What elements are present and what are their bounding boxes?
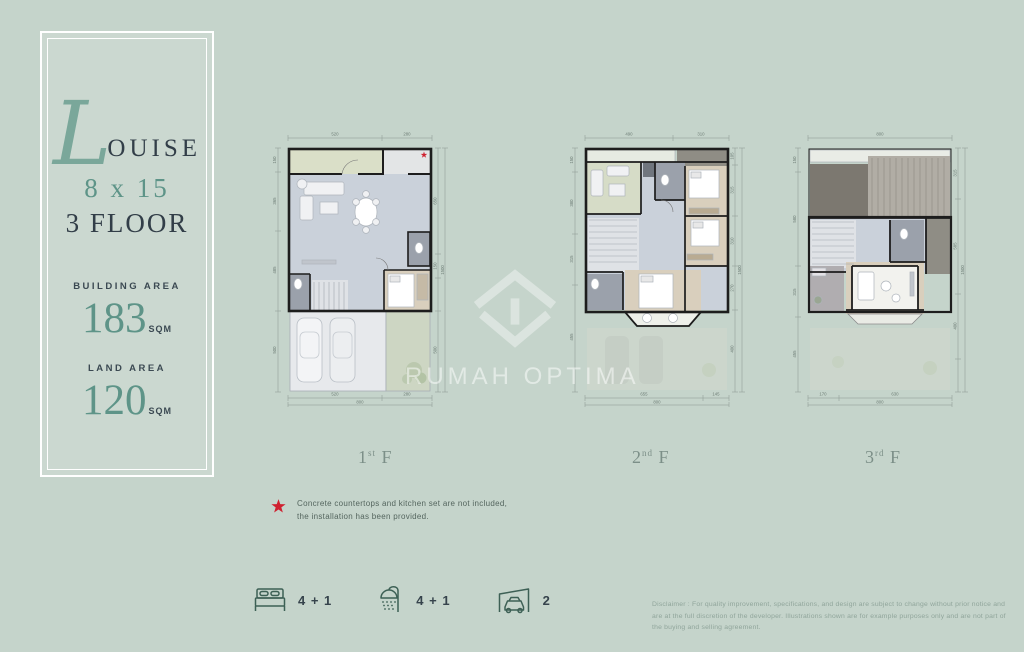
building-area-value: 183SQM [48, 294, 206, 343]
footnote-line-1: Concrete countertops and kitchen set are… [297, 498, 507, 511]
svg-text:310: 310 [697, 132, 705, 137]
svg-text:150: 150 [569, 156, 574, 164]
svg-text:650: 650 [433, 197, 438, 205]
floor-plan-3-drawing: 800 170 630 800 150 580 315 455 315 585 … [784, 122, 968, 407]
svg-text:270: 270 [730, 284, 735, 292]
footnote-text: Concrete countertops and kitchen set are… [297, 498, 507, 524]
land-area-number: 120 [82, 377, 147, 424]
svg-text:655: 655 [640, 392, 648, 397]
floor-2-label: 2nd F [632, 447, 670, 468]
title-initial: L [53, 100, 111, 169]
land-area-value: 120SQM [48, 376, 206, 425]
floor-1-label: 1st F [358, 447, 393, 468]
svg-text:145: 145 [712, 392, 720, 397]
carport-count-value: 2 [543, 593, 551, 608]
floor-plan-1-drawing: 520 280 520 280 800 150 365 485 500 650 … [264, 122, 448, 407]
svg-text:170: 170 [819, 392, 827, 397]
svg-text:315: 315 [730, 186, 735, 194]
svg-text:800: 800 [356, 400, 364, 405]
svg-text:800: 800 [653, 400, 661, 405]
floor-plan-2: 490 310 655 145 800 150 380 315 455 105 … [561, 122, 745, 407]
svg-text:1500: 1500 [737, 265, 742, 275]
svg-text:315: 315 [953, 169, 958, 177]
house-logo-icon [455, 260, 575, 356]
svg-text:315: 315 [569, 255, 574, 263]
svg-text:400: 400 [730, 345, 735, 353]
bathroom-count-value: 4 + 1 [416, 593, 450, 608]
svg-text:800: 800 [876, 132, 884, 137]
bedroom-count-value: 4 + 1 [298, 593, 332, 608]
land-area-unit: SQM [148, 406, 172, 416]
svg-text:310: 310 [730, 237, 735, 245]
svg-text:585: 585 [953, 242, 958, 250]
floor-plan-1: 520 280 520 280 800 150 365 485 500 650 … [264, 122, 448, 407]
disclaimer-text: Disclaimer : For quality improvement, sp… [652, 599, 1014, 634]
info-panel-border: L OUISE 8 x 15 3 FLOOR BUILDING AREA 183… [47, 38, 207, 470]
svg-text:580: 580 [792, 215, 797, 223]
info-panel: L OUISE 8 x 15 3 FLOOR BUILDING AREA 183… [40, 31, 214, 477]
shower-icon [378, 585, 404, 615]
floor3-rooms [810, 150, 950, 390]
svg-text:455: 455 [792, 350, 797, 358]
floor-count: 3 FLOOR [48, 208, 206, 239]
svg-text:800: 800 [876, 400, 884, 405]
product-title: L OUISE [48, 83, 206, 169]
bed-icon [254, 587, 286, 613]
svg-text:490: 490 [625, 132, 633, 137]
floor-plan-3: 800 170 630 800 150 580 315 455 315 585 … [784, 122, 968, 407]
land-area-label: LAND AREA [48, 363, 206, 374]
svg-text:485: 485 [272, 266, 277, 274]
floor-plan-2-drawing: 490 310 655 145 800 150 380 315 455 105 … [561, 122, 745, 407]
svg-text:365: 365 [272, 197, 277, 205]
svg-text:105: 105 [730, 152, 735, 160]
brochure-page: L OUISE 8 x 15 3 FLOOR BUILDING AREA 183… [0, 0, 1024, 652]
amenity-bar: 4 + 1 4 + 1 [254, 585, 583, 615]
svg-text:400: 400 [953, 322, 958, 330]
svg-text:150: 150 [792, 156, 797, 164]
svg-text:150: 150 [433, 262, 438, 270]
svg-text:500: 500 [433, 346, 438, 354]
footnote-line-2: the installation has been provided. [297, 511, 507, 524]
floor-3-label: 3rd F [865, 447, 901, 468]
svg-text:455: 455 [569, 333, 574, 341]
svg-text:1500: 1500 [440, 265, 445, 275]
svg-text:380: 380 [569, 199, 574, 207]
car-garage-icon [497, 587, 531, 614]
svg-text:500: 500 [272, 346, 277, 354]
svg-text:315: 315 [792, 288, 797, 296]
svg-text:520: 520 [331, 392, 339, 397]
svg-text:520: 520 [331, 132, 339, 137]
svg-text:280: 280 [403, 392, 411, 397]
carport-count: 2 [497, 587, 551, 614]
building-area-unit: SQM [148, 324, 172, 334]
title-rest: OUISE [107, 135, 201, 163]
bedroom-count: 4 + 1 [254, 587, 332, 613]
footnote-star-icon [270, 498, 287, 515]
bathroom-count: 4 + 1 [378, 585, 450, 615]
building-area-label: BUILDING AREA [48, 281, 206, 292]
footnote: Concrete countertops and kitchen set are… [270, 498, 507, 524]
svg-text:630: 630 [891, 392, 899, 397]
svg-text:280: 280 [403, 132, 411, 137]
svg-text:150: 150 [272, 156, 277, 164]
building-area-number: 183 [82, 295, 147, 342]
svg-text:1500: 1500 [960, 265, 965, 275]
